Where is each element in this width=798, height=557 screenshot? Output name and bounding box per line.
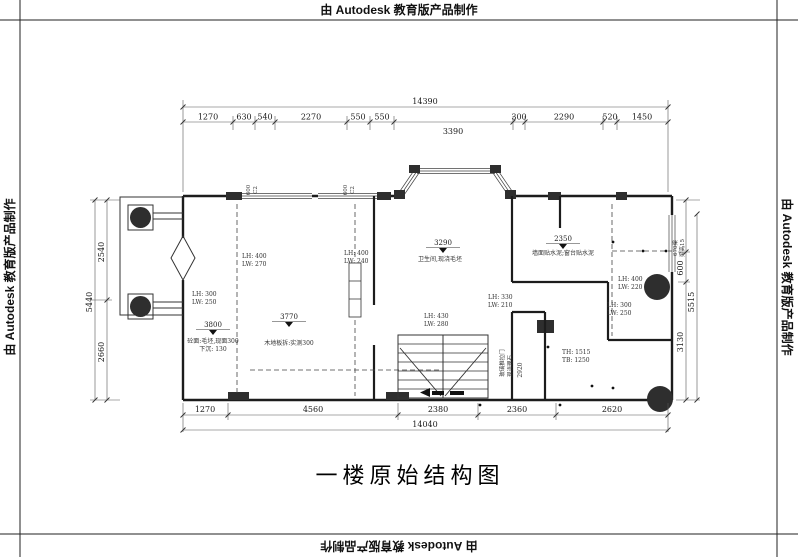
dim-top-total: 14390	[412, 97, 437, 106]
dims-left: 2540 2660 5440	[85, 242, 106, 362]
beam-label: LW: 270	[242, 261, 267, 268]
floor-plan-svg: 14390 1270 630 540 2270 550 550 3390 300…	[0, 0, 798, 557]
beam-label: LW: 280	[424, 321, 449, 328]
beam-label: LW: 210	[488, 302, 513, 309]
cad-drawing-canvas: 由 Autodesk 教育版产品制作 由 Autodesk 教育版产品制作 由 …	[0, 0, 798, 557]
beam-label: LH: 330	[488, 294, 513, 301]
vertical-dim: 2920	[517, 362, 524, 377]
staircase	[398, 335, 488, 398]
beam-note: 670梁	[671, 240, 679, 256]
dim-top-seg: 2290	[554, 113, 574, 122]
dim-top-seg: 2270	[301, 113, 321, 122]
beam-label: LH: 300	[192, 291, 217, 298]
dim-left-seg: 2660	[97, 342, 106, 362]
dimension-lines	[90, 100, 700, 432]
beam-labels: LH: 400 LW: 270 LH: 300 LW: 250 LH: 400 …	[192, 250, 643, 364]
elevation-note: 下沉: 130	[199, 345, 227, 353]
dims-right: 600 3130 5515 670梁 梁高15	[671, 239, 696, 353]
dim-left-total: 5440	[85, 292, 94, 312]
vertical-notes: 玻璃推拉门 现浇理石 2920 600 C2 600 C2	[246, 184, 524, 377]
dim-bottom-total: 14040	[412, 420, 437, 429]
window-tag: 600	[246, 184, 252, 195]
beam-label: LW: 250	[607, 310, 632, 317]
dim-bottom-seg: 2620	[602, 405, 622, 414]
beam-label: LW: 250	[192, 299, 217, 306]
dim-top-seg: 1270	[198, 113, 218, 122]
dim-bottom-seg: 1270	[195, 405, 215, 414]
window-tag: C2	[350, 186, 356, 194]
dim-right-seg: 600	[676, 260, 685, 275]
window-tag: C2	[253, 186, 259, 194]
dim-bottom-seg: 2380	[428, 405, 448, 414]
dims-bottom: 1270 4560 2380 2360 2620 14040	[195, 405, 622, 429]
beam-label: LH: 400	[242, 253, 267, 260]
elevation-marker: 3800 砼面:毛坯,现面300 下沉: 130	[187, 321, 239, 353]
outer-walls	[183, 196, 672, 400]
dim-bottom-seg: 4560	[303, 405, 323, 414]
dim-top-seg: 550	[350, 113, 365, 122]
elevation-marker: 3770 木地板拆:实测300	[264, 313, 314, 347]
dim-top-seg: 550	[374, 113, 389, 122]
window-tag: 600	[343, 184, 349, 195]
vertical-note: 玻璃推拉门	[498, 349, 506, 377]
dashed-reference-lines	[237, 204, 672, 396]
dim-left-seg: 2540	[97, 242, 106, 262]
elevation-value: 3770	[280, 313, 298, 321]
elevation-value: 3290	[434, 239, 452, 247]
elevation-marker: 2350 墙面贴水泥;窗台贴水泥	[532, 235, 594, 257]
dim-top-seg: 520	[602, 113, 617, 122]
beam-label: LH: 430	[424, 313, 449, 320]
entry-door-symbol	[171, 236, 195, 280]
porch-columns	[130, 207, 151, 317]
point-markers	[479, 241, 668, 407]
elevation-marker: 3290 卫生间,现浇毛坯	[418, 239, 462, 263]
wall-niche	[349, 263, 361, 317]
dim-top-seg: 1450	[632, 113, 652, 122]
elevation-value: 3800	[204, 321, 222, 329]
beam-label: LW: 220	[618, 284, 643, 291]
dim-top-seg: 300	[511, 113, 526, 122]
dim-right-total: 5515	[687, 292, 696, 312]
elevation-note: 墙面贴水泥;窗台贴水泥	[532, 249, 594, 257]
beam-label: LW: 240	[344, 258, 369, 265]
dim-bottom-seg: 2360	[507, 405, 527, 414]
beam-label: LH: 400	[618, 276, 643, 283]
beam-label: TH: 1515	[562, 349, 591, 356]
beam-note: 梁高15	[678, 239, 686, 257]
beam-label: LH: 300	[607, 302, 632, 309]
elevation-note: 砼面:毛坯,现面300	[187, 337, 239, 345]
beam-label: TB: 1250	[562, 357, 590, 364]
beam-label: LH: 400	[344, 250, 369, 257]
dim-top-mid: 3390	[443, 127, 463, 136]
elevation-note: 卫生间,现浇毛坯	[418, 255, 462, 263]
dim-right-seg: 3130	[676, 332, 685, 352]
dim-top-seg: 630	[236, 113, 251, 122]
dim-top-seg: 540	[257, 113, 272, 122]
elevation-value: 2350	[554, 235, 572, 243]
structural-columns	[226, 165, 673, 412]
elevation-note: 木地板拆:实测300	[264, 339, 314, 347]
vertical-note: 现浇理石	[506, 355, 514, 378]
dims-top: 14390 1270 630 540 2270 550 550 3390 300…	[198, 97, 652, 136]
